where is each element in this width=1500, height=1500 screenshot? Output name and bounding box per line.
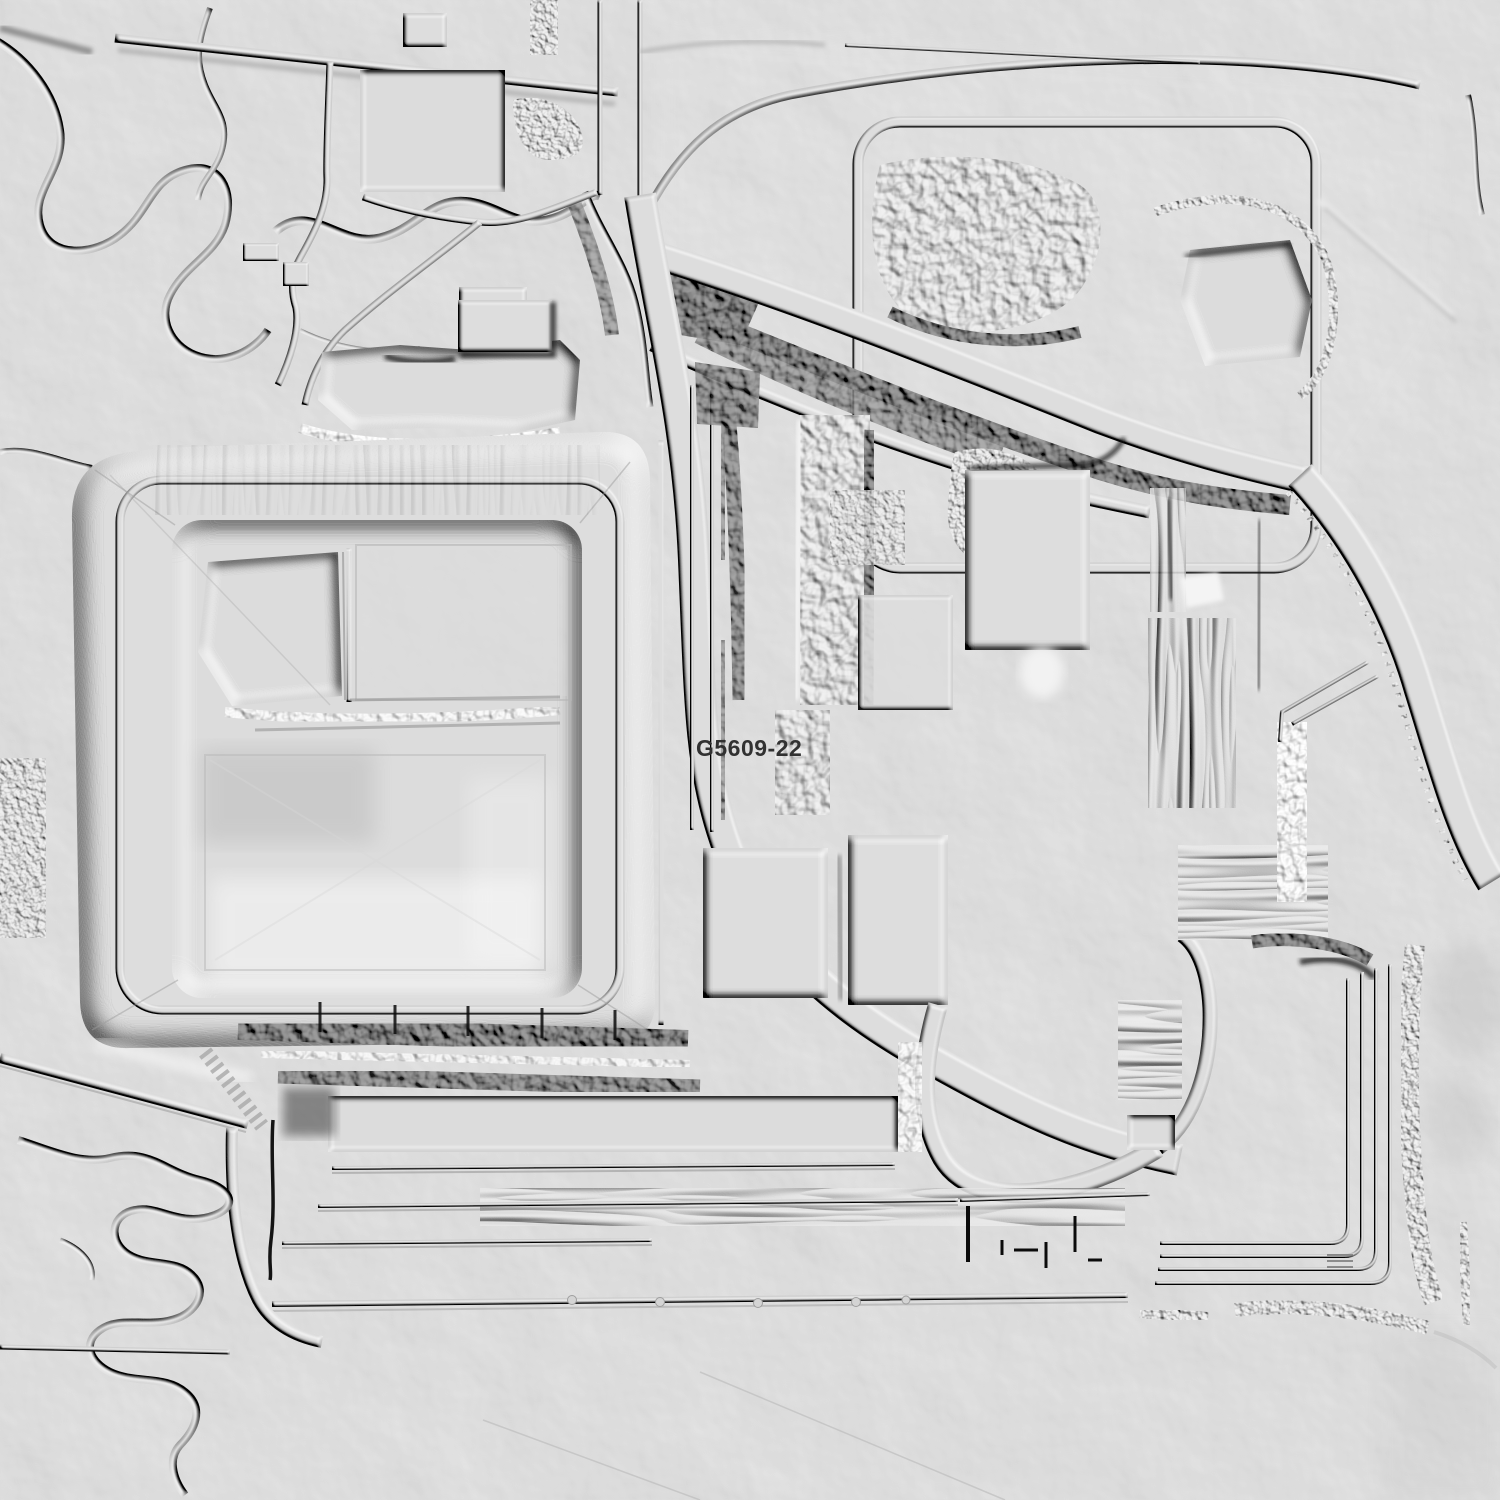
west-impoundment: [72, 432, 662, 1078]
hillshade-map: G5609-22: [0, 0, 1500, 1500]
map-label: G5609-22: [696, 735, 802, 762]
